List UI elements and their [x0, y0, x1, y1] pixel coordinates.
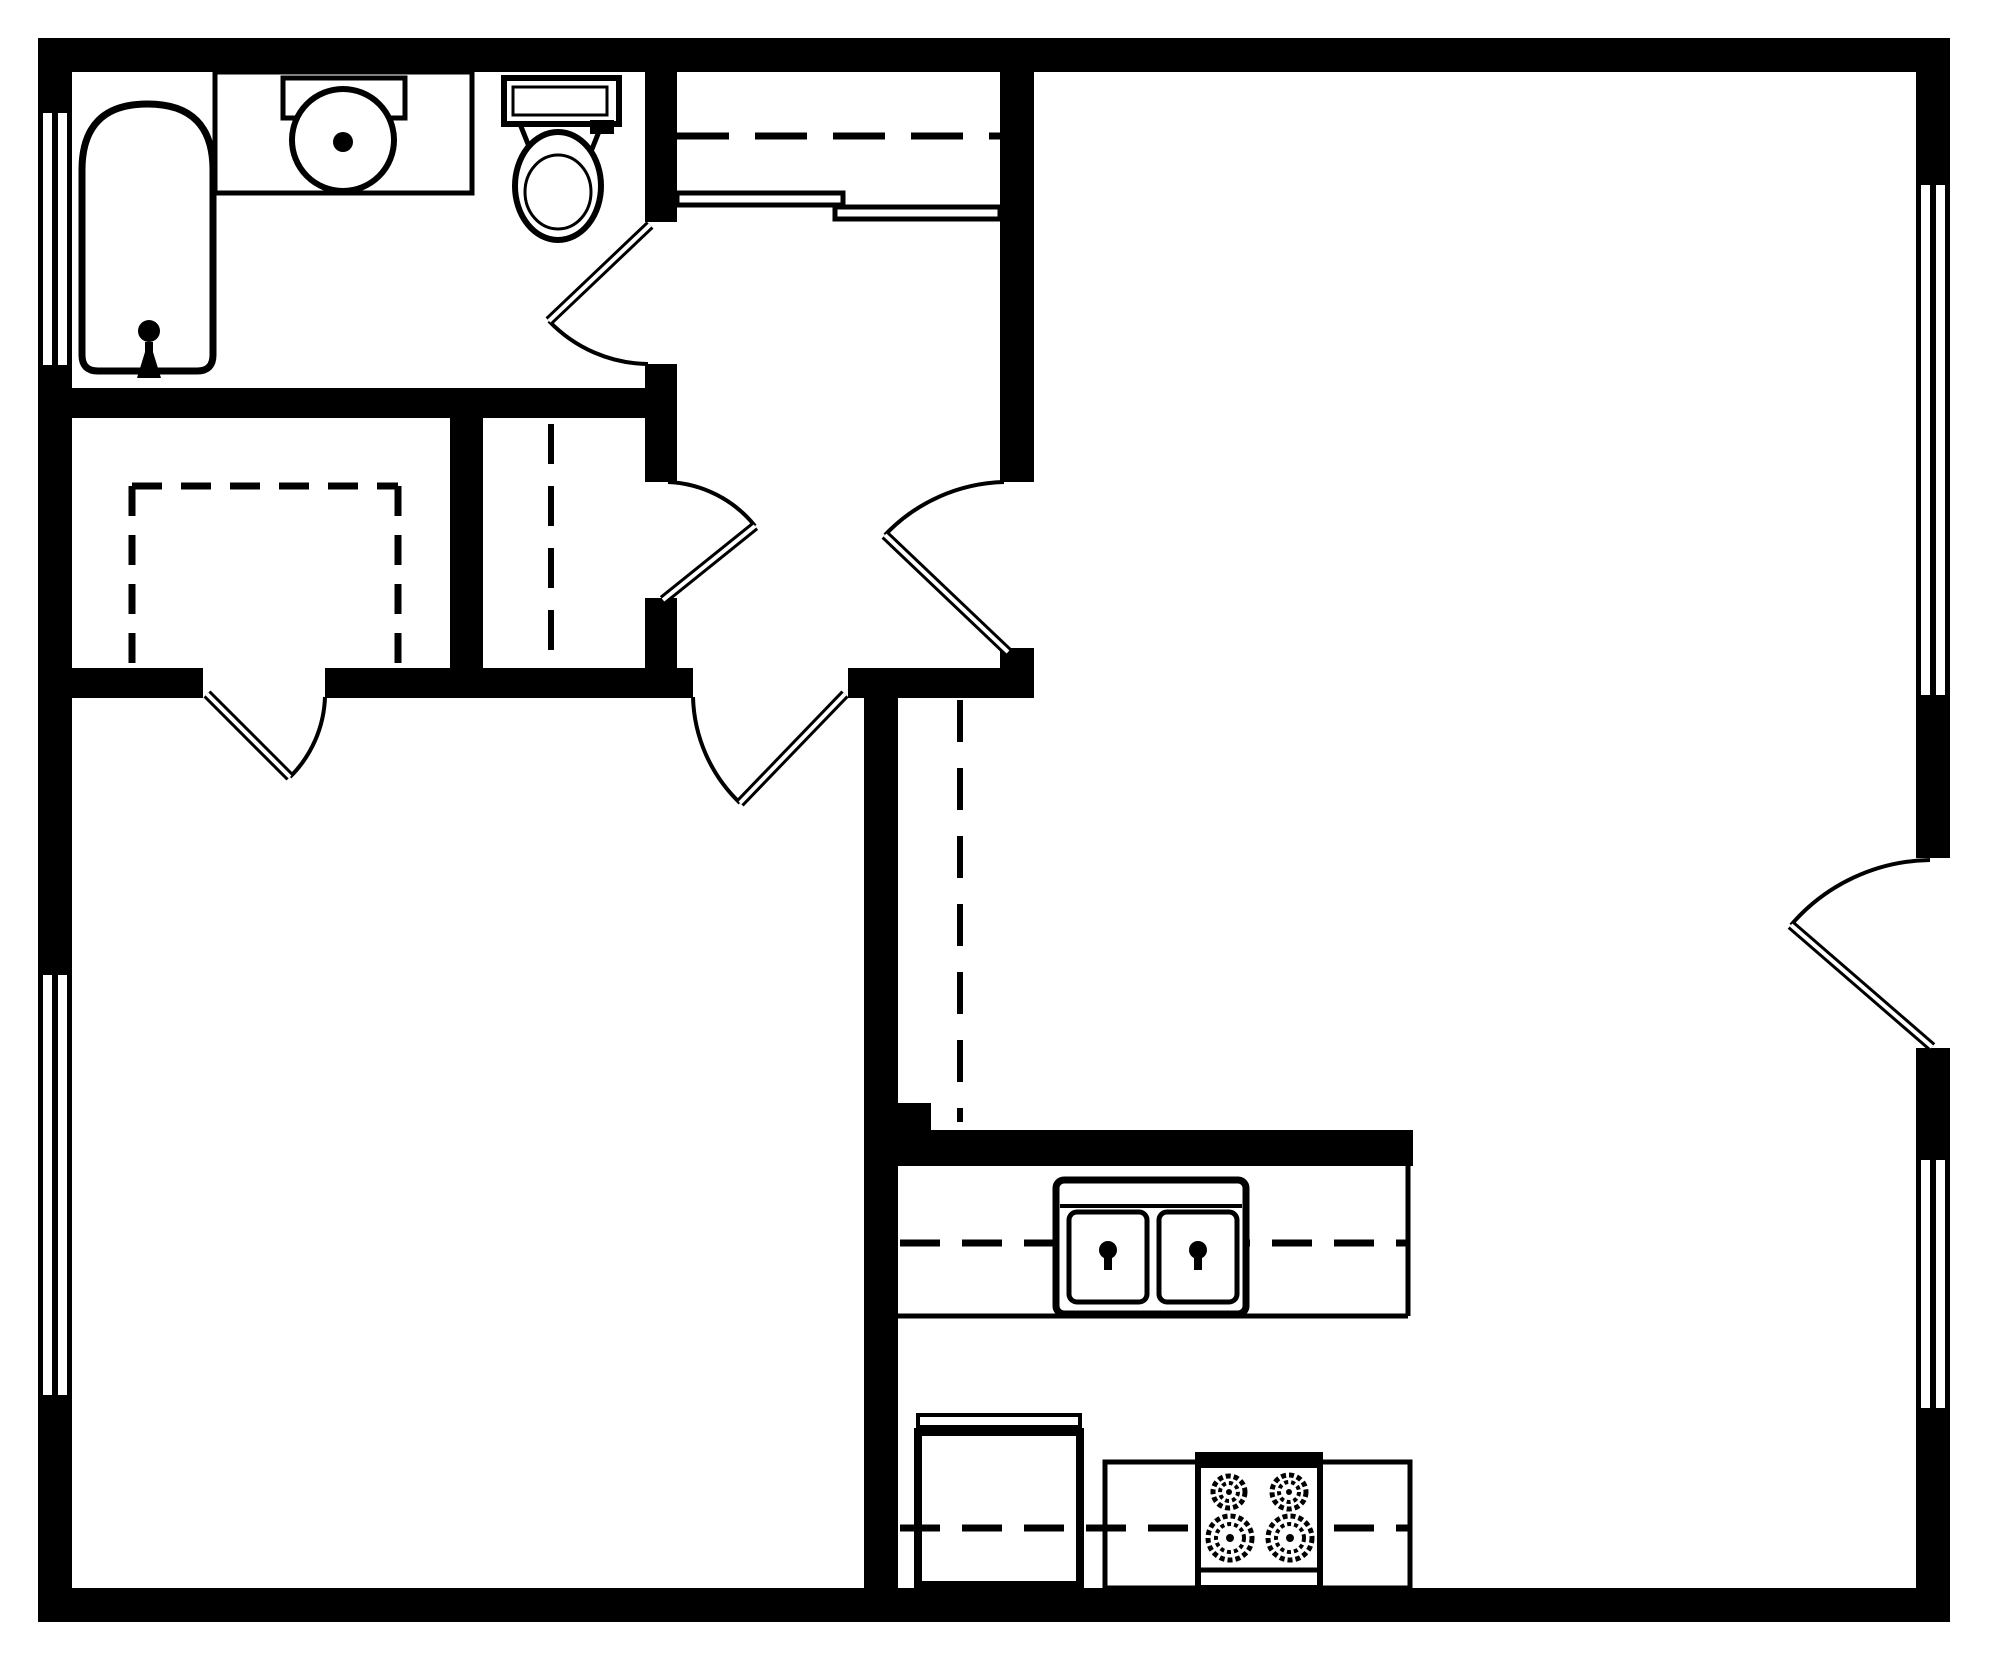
- wall-closet-divider: [450, 418, 483, 698]
- toilet-bowl: [515, 132, 601, 240]
- window-living-upper-line-center: [1930, 185, 1936, 695]
- burner-top-right-dot: [1286, 1489, 1292, 1495]
- window-living-upper-line-inner: [1945, 185, 1950, 695]
- window-bedroom-line-outer: [38, 975, 43, 1395]
- kitchen-sink-drain-right: [1189, 1241, 1207, 1259]
- wall-hall-right-upper: [1000, 72, 1034, 482]
- window-bathroom-line-inner: [67, 113, 72, 365]
- wall-mid-band-center: [325, 668, 693, 698]
- burner-top-left-dot: [1226, 1489, 1232, 1495]
- window-bedroom-line-inner: [67, 975, 72, 1395]
- outer-wall-bottom: [38, 1588, 1950, 1622]
- outer-wall-top: [38, 38, 1950, 72]
- bathtub-drain-dot: [138, 320, 160, 342]
- kitchen-sink-stem-left: [1104, 1258, 1112, 1270]
- window-living-lower-line-inner: [1945, 1160, 1950, 1408]
- floor-plan-canvas: [0, 0, 2000, 1675]
- burner-bottom-left-dot: [1226, 1534, 1234, 1542]
- wall-kitchen-divider: [864, 698, 898, 1590]
- sliding-door-panel-left: [677, 193, 843, 205]
- wall-counter-band: [898, 1130, 1413, 1166]
- sliding-door-panel-right: [835, 207, 1000, 219]
- wall-bath-right-upper: [645, 72, 677, 222]
- stove-top-bar: [1198, 1455, 1320, 1468]
- window-bathroom-line-outer: [38, 113, 43, 365]
- wall-bath-bottom: [72, 388, 677, 418]
- window-living-lower-line-center: [1930, 1160, 1936, 1408]
- kitchen-sink-outer: [1056, 1180, 1246, 1314]
- wall-hall-right-lower: [1000, 648, 1034, 698]
- wall-mid-band-left: [72, 668, 203, 698]
- refrigerator-top: [918, 1415, 1080, 1427]
- refrigerator: [918, 1432, 1080, 1585]
- floor-plan-page: [0, 0, 2000, 1675]
- kitchen-sink-drain-left: [1099, 1241, 1117, 1259]
- window-bedroom-line-center: [52, 975, 58, 1395]
- window-living-lower-line-outer: [1916, 1160, 1921, 1408]
- wall-bath-door-stub: [645, 364, 677, 482]
- entry-door-opening: [1916, 858, 1950, 1048]
- window-bathroom-line-center: [52, 113, 58, 365]
- toilet-tank: [504, 78, 619, 124]
- kitchen-sink-stem-right: [1194, 1258, 1202, 1270]
- vanity-sink-drain: [333, 132, 353, 152]
- wall-counter-notch: [898, 1103, 931, 1130]
- window-living-upper-line-outer: [1916, 185, 1921, 695]
- burner-bottom-right-dot: [1286, 1534, 1294, 1542]
